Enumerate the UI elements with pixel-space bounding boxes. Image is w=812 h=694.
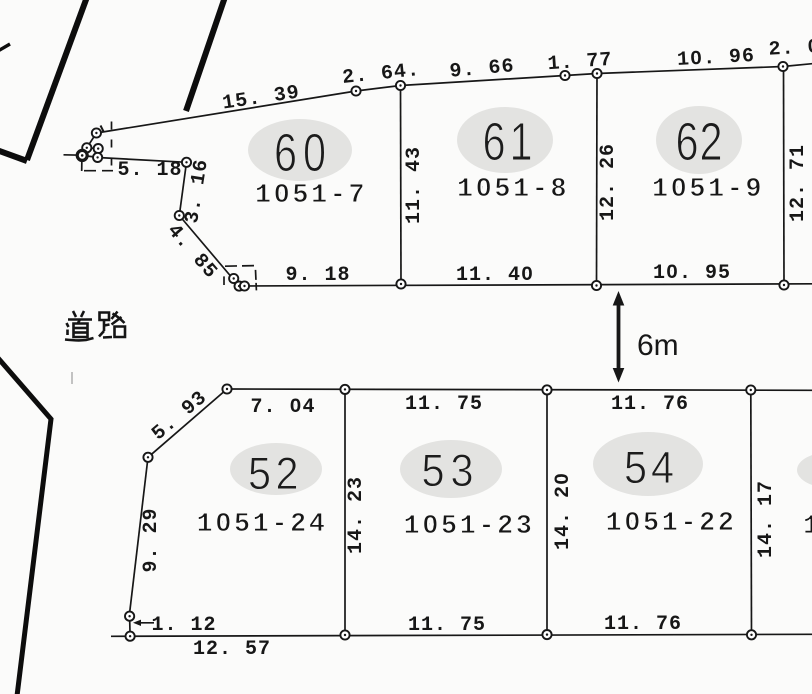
- svg-text:5: 5: [624, 443, 647, 493]
- svg-text:4: 4: [651, 443, 674, 493]
- svg-text:1051-22: 1051-22: [606, 509, 737, 539]
- svg-text:11. 40: 11. 40: [456, 264, 534, 287]
- svg-text:6: 6: [482, 113, 505, 172]
- svg-text:1051-7: 1051-7: [255, 181, 367, 211]
- svg-text:3: 3: [450, 446, 473, 496]
- svg-text:0: 0: [303, 124, 326, 183]
- svg-text:11. 43: 11. 43: [403, 146, 426, 224]
- svg-text:10: 10: [803, 512, 812, 542]
- svg-text:1: 1: [509, 113, 532, 172]
- svg-text:11. 76: 11. 76: [611, 393, 689, 416]
- svg-text:5: 5: [248, 449, 271, 499]
- svg-text:1. 12: 1. 12: [151, 614, 216, 637]
- svg-text:11. 75: 11. 75: [408, 614, 486, 637]
- svg-text:12. 26: 12. 26: [597, 143, 620, 221]
- svg-text:1051-9: 1051-9: [652, 175, 764, 205]
- svg-text:7. 04: 7. 04: [250, 396, 315, 419]
- svg-text:10. 96: 10. 96: [677, 45, 756, 72]
- svg-text:11. 76: 11. 76: [604, 613, 682, 636]
- svg-text:9. 18: 9. 18: [285, 264, 350, 287]
- svg-text:9. 29: 9. 29: [140, 507, 163, 572]
- svg-text:1051-23: 1051-23: [404, 512, 535, 542]
- svg-text:2: 2: [275, 449, 298, 499]
- svg-text:1. 77: 1. 77: [547, 49, 613, 76]
- svg-text:6m: 6m: [637, 329, 679, 362]
- svg-text:1051-8: 1051-8: [457, 175, 569, 205]
- svg-text:2: 2: [699, 113, 722, 172]
- svg-text:5. 18: 5. 18: [117, 159, 182, 182]
- svg-text:12. 71: 12. 71: [787, 144, 810, 222]
- svg-text:2. 04: 2. 04: [768, 35, 812, 61]
- svg-text:5: 5: [421, 446, 444, 496]
- svg-text:14. 20: 14. 20: [552, 472, 575, 550]
- svg-text:10. 95: 10. 95: [653, 262, 731, 285]
- svg-text:11. 75: 11. 75: [405, 393, 483, 416]
- svg-text:14. 23: 14. 23: [345, 476, 368, 554]
- svg-text:14. 17: 14. 17: [755, 480, 778, 558]
- svg-text:6: 6: [675, 113, 698, 172]
- svg-text:1051-24: 1051-24: [197, 510, 328, 540]
- svg-text:12. 57: 12. 57: [193, 638, 271, 661]
- svg-text:6: 6: [274, 124, 297, 183]
